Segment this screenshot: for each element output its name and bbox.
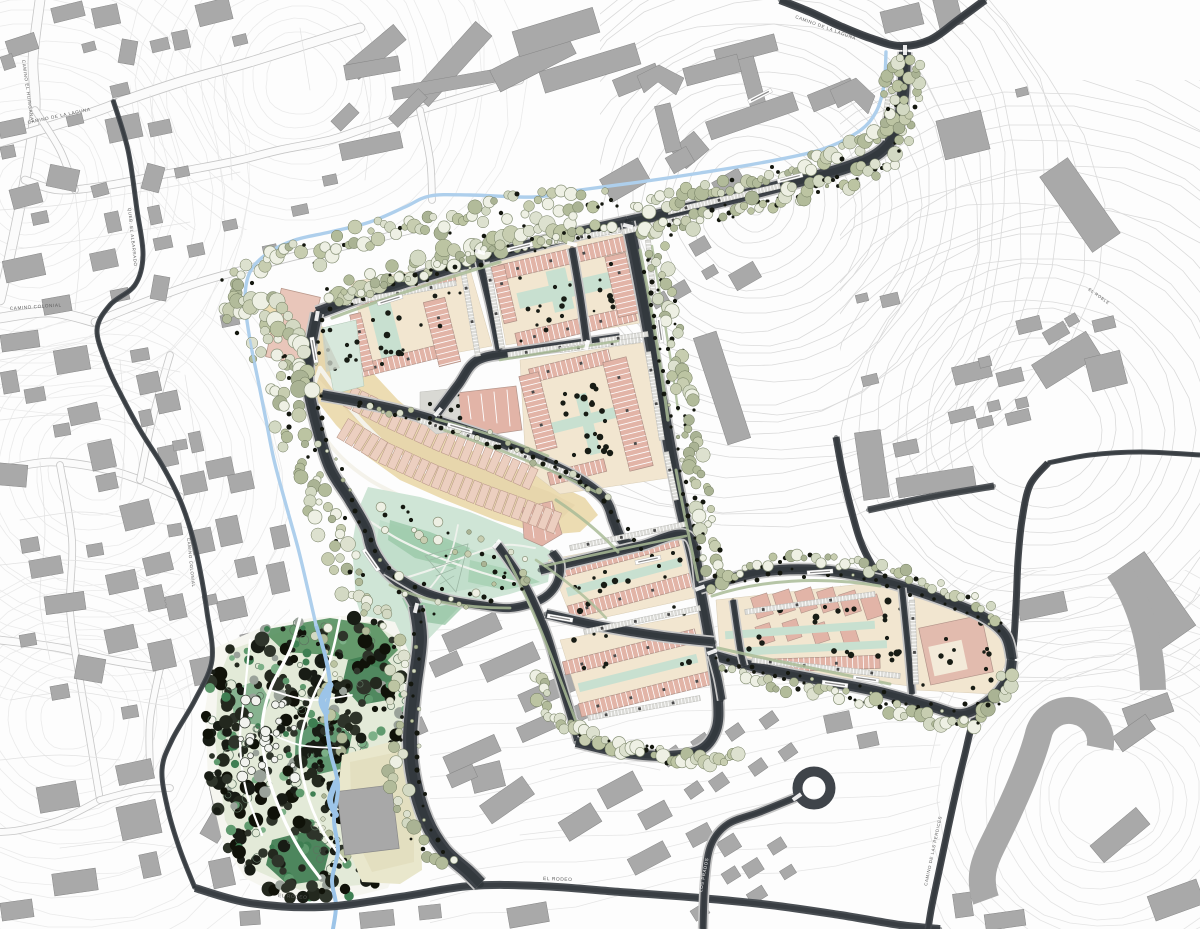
svg-text:EL RODEO: EL RODEO bbox=[543, 876, 573, 883]
